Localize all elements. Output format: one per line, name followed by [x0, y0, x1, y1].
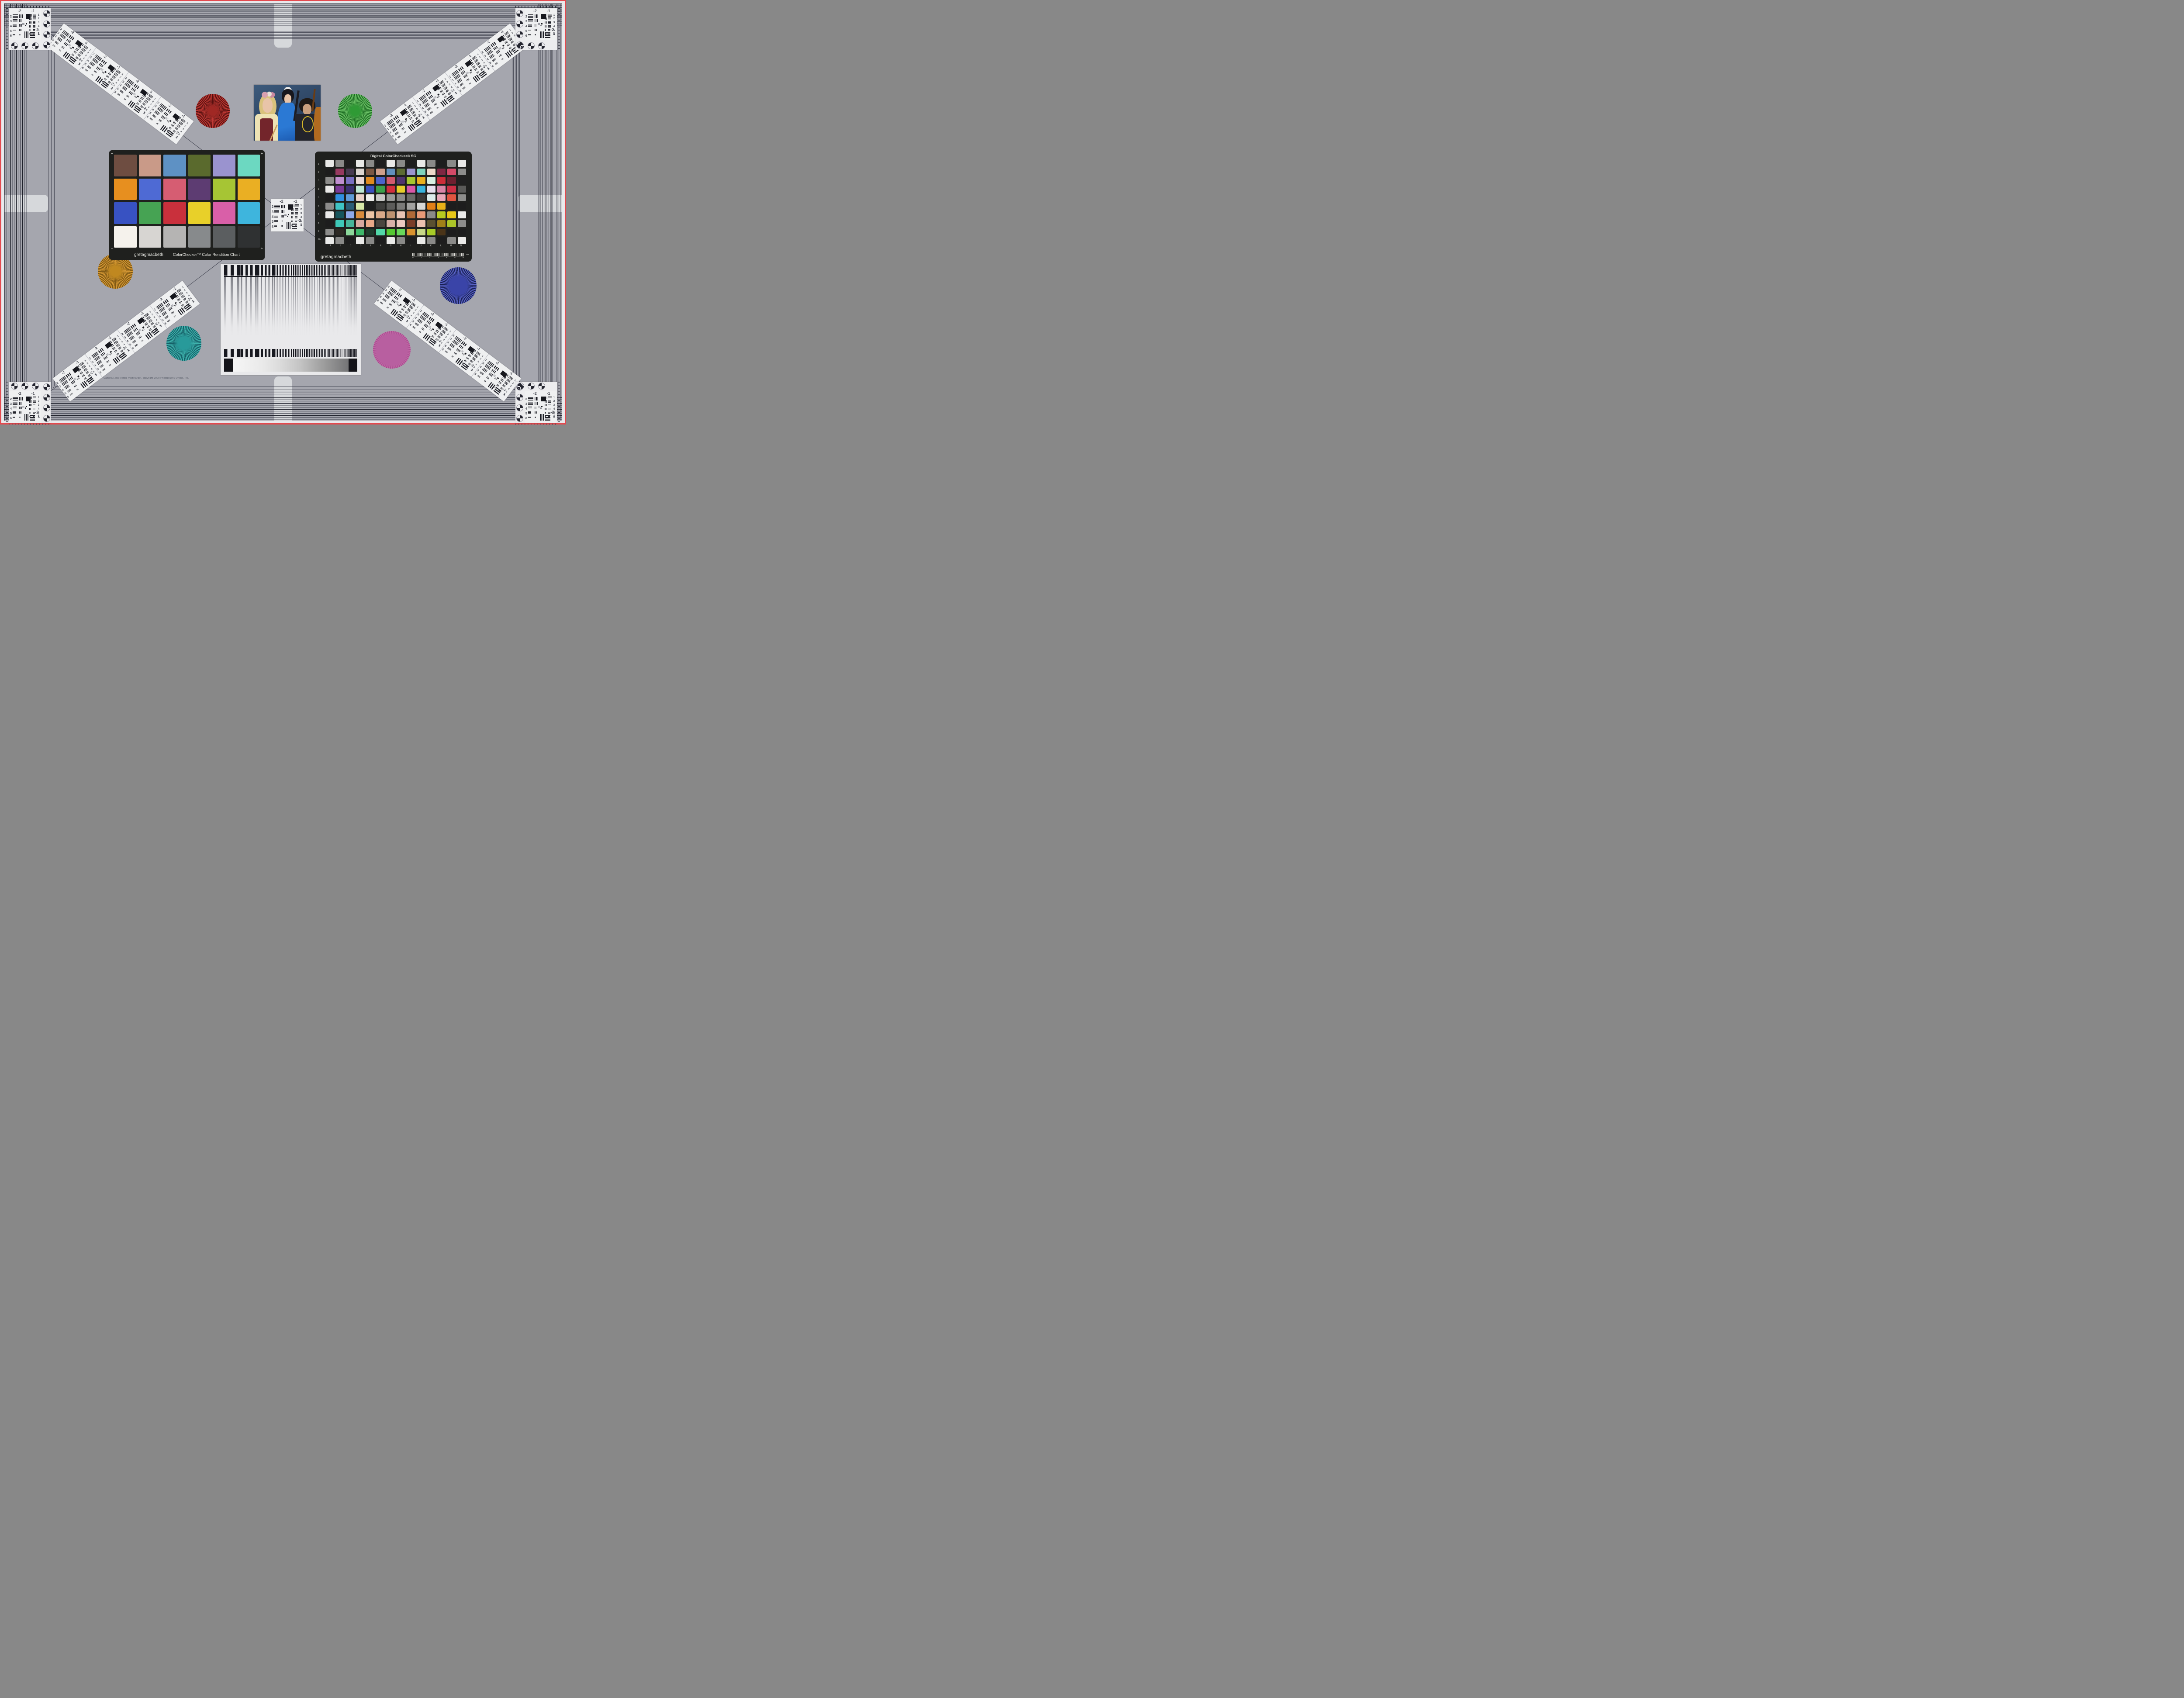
cc-patch-6	[238, 155, 260, 176]
usaf-hbars	[100, 364, 104, 368]
usaf-hbars	[548, 408, 550, 410]
usaf-fine-cluster	[77, 377, 79, 380]
usaf-vbars	[428, 95, 433, 100]
top-line-pattern	[4, 3, 562, 27]
usaf-hbars	[274, 205, 280, 208]
sg-patch-H8	[397, 220, 405, 227]
usaf-left-number: 6	[376, 300, 379, 303]
usaf-hbars	[86, 371, 89, 374]
sg-patch-K8	[427, 220, 435, 227]
usaf-left-number: 3	[272, 211, 273, 214]
usaf-left-number: 5	[129, 343, 132, 347]
usaf-right-number: 4	[180, 131, 182, 133]
fiducial-quadrant-icon	[516, 21, 523, 28]
usaf-hbars	[85, 69, 88, 72]
usaf-label-bottom-1: 1	[110, 86, 114, 90]
usaf-left-number: 2	[156, 101, 159, 105]
usaf-hbars	[122, 86, 128, 91]
usaf-vbars	[466, 78, 470, 81]
edge-tick-ruler	[515, 424, 557, 424]
sg-patch-K6	[427, 203, 435, 210]
usaf-left-number: 3	[56, 31, 59, 35]
usaf-hbars	[33, 408, 35, 410]
fiducial-quadrant-icon	[43, 31, 50, 38]
usaf-right-number: 2	[553, 400, 555, 403]
usaf-vbars	[96, 66, 100, 70]
chirp-bars-top	[224, 265, 357, 276]
usaf-vbars	[442, 93, 445, 96]
sg-patch-C1	[346, 160, 354, 167]
usaf-vbars	[159, 119, 162, 122]
usaf-hbars	[13, 402, 17, 405]
usaf-vbars	[424, 324, 428, 328]
usaf-bottom-hbars	[414, 119, 422, 127]
usaf-hbars	[445, 350, 448, 353]
ruler-number: 4	[446, 256, 447, 259]
usaf-fine-square	[26, 23, 27, 24]
sg-column-label: A	[325, 245, 335, 247]
sg-row-label: 10	[318, 238, 321, 241]
usaf-vbars	[147, 325, 150, 328]
sg-patch-F8	[376, 220, 384, 227]
usaf-hbars	[33, 400, 36, 403]
usaf-vbars	[109, 364, 111, 366]
usaf-fine-cluster	[22, 406, 24, 407]
usaf-left-number: 5	[51, 39, 54, 42]
edge-tick-ruler	[6, 382, 8, 423]
usaf-label-minus2: -2	[280, 200, 283, 204]
edge-tick-ruler	[9, 424, 50, 424]
sg-patch-F6	[376, 203, 384, 210]
usaf-left-number: 2	[416, 100, 419, 104]
sg-column-label: N	[456, 245, 466, 247]
chirp-bars-bottom	[224, 349, 357, 357]
cc-patch-5	[213, 155, 235, 176]
sg-patch-L7	[437, 211, 446, 218]
usaf-bottom-vbars	[24, 31, 28, 38]
usaf-right-number: 3	[38, 404, 40, 407]
ruler-number: 5	[454, 256, 456, 259]
fiducial-quadrant-icon	[43, 415, 50, 422]
sg-patch-F9	[376, 229, 384, 236]
usaf-left-number: 3	[91, 361, 94, 364]
sg-patch-J2	[417, 169, 425, 176]
sg-column-label: M	[446, 245, 456, 247]
usaf-left-number: 2	[92, 52, 95, 56]
usaf-hbars	[274, 220, 277, 222]
usaf-vbars	[545, 408, 546, 410]
usaf-right-number: 1	[121, 73, 124, 76]
photo-flower-crown	[260, 91, 275, 98]
sg-patch-L4	[437, 186, 446, 193]
usaf-right-number: 3	[509, 385, 512, 388]
usaf-label-minus1: -1	[31, 9, 35, 13]
usaf-left-number: 2	[481, 51, 484, 55]
usaf-left-number: 6	[81, 67, 84, 70]
sg-patch-M10	[447, 237, 456, 244]
fiducial-quadrant-icon	[516, 404, 523, 411]
corner-panel-bottom-right: -2-123456123456-21	[515, 382, 557, 423]
usaf-hbars	[295, 208, 298, 211]
usaf-left-number: 2	[10, 15, 12, 18]
ruler-ticks	[412, 253, 464, 256]
sg-title: Digital ColorChecker® SG	[315, 154, 472, 158]
usaf-vbars	[108, 72, 111, 76]
usaf-vbars	[545, 412, 546, 414]
usaf-vbars	[19, 411, 21, 414]
usaf-fine-square	[541, 23, 543, 24]
ruler-number: 3	[438, 256, 439, 259]
usaf-right-number: 2	[151, 100, 154, 103]
usaf-fine-cluster	[284, 214, 287, 216]
usaf-hbars	[164, 315, 169, 319]
edge-tick-ruler	[9, 6, 50, 8]
fiducial-quadrant-icon	[43, 10, 50, 17]
sg-patch-G8	[387, 220, 395, 227]
usaf-left-number: 3	[417, 313, 420, 317]
usaf-right-number: 1	[444, 78, 447, 80]
usaf-label-bottom-1: 1	[38, 32, 40, 36]
usaf-hbars	[430, 111, 433, 114]
usaf-vbars	[161, 115, 165, 119]
usaf-left-number: 3	[525, 402, 527, 406]
usaf-label-minus2: -2	[454, 64, 459, 69]
usaf-vbars	[281, 210, 284, 213]
corner-usaf-target: -2-123456123456-21	[525, 9, 556, 40]
photo-cello-body	[314, 107, 321, 141]
usaf-vbars	[444, 96, 446, 98]
sg-patch-B5	[335, 194, 344, 201]
usaf-hbars	[511, 41, 514, 44]
usaf-vbars	[419, 331, 422, 333]
usaf-vbars	[472, 65, 476, 69]
usaf-right-number: 3	[182, 128, 184, 131]
sg-patch-B4	[335, 186, 344, 193]
usaf-label-minus2: -2	[397, 287, 402, 292]
usaf-left-number: 2	[387, 285, 390, 289]
usaf-fine-cluster	[502, 47, 505, 49]
usaf-right-number: 4	[114, 82, 117, 85]
ruler-number: 0	[412, 256, 414, 259]
usaf-hbars	[33, 17, 36, 20]
corner-usaf-target: -2-123456123456-21	[10, 391, 41, 423]
photo-necklace	[302, 116, 314, 132]
cc-patch-10	[188, 179, 211, 200]
usaf-left-number: 4	[479, 366, 482, 369]
usaf-left-number: 2	[452, 334, 455, 338]
usaf-left-number: 6	[492, 66, 495, 69]
usaf-label-minus1: -1	[149, 89, 153, 94]
cc-patch-9	[163, 179, 186, 200]
usaf-left-number: 4	[422, 107, 425, 110]
usaf-left-number: 5	[162, 319, 165, 322]
sg-column-label: B	[335, 245, 346, 247]
sg-patch-I6	[407, 203, 415, 210]
sg-patch-E7	[366, 211, 374, 218]
usaf-vbars	[464, 360, 467, 362]
usaf-vbars	[177, 298, 180, 301]
sg-patch-L6	[437, 203, 446, 210]
usaf-left-number: 6	[132, 347, 135, 351]
sg-patch-D4	[356, 186, 364, 193]
usaf-left-number: 2	[121, 333, 124, 336]
sg-patch-B1	[335, 160, 344, 167]
usaf-fine-square	[169, 120, 171, 122]
usaf-left-number: 3	[419, 104, 422, 107]
usaf-left-number: 3	[121, 80, 124, 84]
usaf-hbars	[380, 301, 383, 304]
plus-mark-icon: +	[111, 247, 113, 250]
sg-patch-A3	[325, 177, 334, 184]
plus-mark-icon: +	[261, 247, 263, 250]
usaf-hbars	[181, 294, 185, 298]
usaf-vbars	[431, 99, 435, 103]
usaf-left-number: 6	[164, 323, 167, 326]
sg-patch-B9	[335, 229, 344, 236]
sg-brand: gretagmacbeth	[321, 254, 351, 259]
usaf-vbars	[456, 348, 460, 352]
usaf-left-number: 2	[154, 308, 157, 312]
usaf-left-number: 6	[473, 373, 477, 376]
usaf-right-number: 3	[301, 212, 302, 215]
usaf-hbars	[67, 389, 72, 393]
corner-usaf-target: -2-123456123456-21	[525, 391, 556, 423]
usaf-label-bottom-1: 1	[470, 368, 473, 372]
usaf-right-number: 4	[410, 315, 412, 318]
usaf-fine-cluster	[25, 25, 27, 27]
usaf-fine-cluster	[404, 120, 407, 122]
sg-patch-K5	[427, 194, 435, 201]
usaf-left-number: 4	[86, 60, 89, 63]
usaf-fine-square	[470, 69, 472, 71]
usaf-right-number: 2	[119, 76, 121, 79]
usaf-fine-square	[437, 94, 439, 96]
usaf-left-number: 4	[10, 407, 12, 411]
sg-row-label: 6	[318, 205, 321, 207]
usaf-vbars	[491, 369, 496, 374]
usaf-vbars	[477, 71, 479, 73]
usaf-right-number: 1	[153, 98, 156, 100]
frequency-sweep-chart	[221, 264, 361, 375]
ruler-number: 2	[429, 256, 430, 259]
usaf-hbars	[528, 397, 533, 400]
sg-patch-B7	[335, 211, 344, 218]
fiducial-quadrant-icon	[538, 383, 545, 390]
sg-patch-C8	[346, 220, 354, 227]
sg-patch-H9	[397, 229, 405, 236]
usaf-bottom-hbars	[30, 415, 35, 421]
usaf-hbars	[505, 381, 508, 385]
usaf-vbars	[106, 75, 109, 78]
usaf-vbars	[440, 90, 443, 93]
usaf-hbars	[79, 51, 83, 54]
usaf-label-bottom-1: 1	[502, 393, 506, 397]
usaf-hbars	[274, 215, 278, 217]
sg-patch-M2	[447, 169, 456, 176]
usaf-left-number: 4	[381, 293, 384, 296]
usaf-left-number: 5	[476, 369, 479, 373]
usaf-hbars	[528, 411, 531, 414]
usaf-left-number: 4	[272, 215, 273, 219]
colorchecker-brand: gretagmacbeth	[134, 252, 163, 257]
usaf-hbars	[13, 34, 15, 35]
usaf-hbars	[395, 131, 399, 135]
usaf-left-number: 4	[487, 58, 490, 62]
sg-patch-N3	[458, 177, 466, 184]
usaf-vbars	[421, 327, 425, 330]
usaf-vbars	[149, 328, 152, 331]
usaf-label-minus2: -2	[135, 79, 140, 84]
usaf-right-number: 4	[82, 58, 85, 60]
usaf-vbars	[535, 34, 536, 35]
usaf-vbars	[19, 24, 22, 27]
usaf-fine-square	[137, 96, 139, 97]
usaf-label-bottom-1: 1	[553, 414, 555, 418]
cc-patch-23	[213, 226, 235, 248]
usaf-right-number: 1	[38, 14, 40, 17]
fiducial-quadrant-icon	[517, 383, 524, 390]
usaf-hbars	[13, 397, 18, 400]
usaf-vbars	[141, 339, 144, 342]
usaf-vbars	[509, 47, 511, 49]
usaf-label-minus2: -2	[18, 9, 21, 13]
usaf-right-number: 2	[119, 338, 121, 341]
usaf-fine-square	[72, 47, 74, 48]
sg-row-label: 7	[318, 213, 321, 216]
usaf-fine-cluster	[498, 47, 502, 50]
usaf-hbars	[52, 44, 55, 47]
sg-patch-D10	[356, 237, 364, 244]
cc-patch-19	[114, 226, 137, 248]
usaf-vbars	[76, 48, 79, 52]
colorchecker-grid	[114, 155, 260, 248]
usaf-hbars	[528, 417, 530, 418]
sg-patch-A4	[325, 186, 334, 193]
usaf-left-number: 2	[124, 77, 127, 80]
sg-patch-J3	[417, 177, 425, 184]
chirp-segment	[308, 349, 324, 357]
usaf-hbars	[548, 400, 551, 403]
sg-patch-I5	[407, 194, 415, 201]
usaf-vbars	[411, 120, 414, 122]
sg-patch-E6	[366, 203, 374, 210]
edge-tick-ruler	[6, 8, 8, 50]
sg-patch-F7	[376, 211, 384, 218]
usaf-vbars	[145, 322, 148, 326]
usaf-vbars	[436, 107, 439, 109]
sg-patch-N4	[458, 186, 466, 193]
usaf-vbars	[29, 25, 31, 27]
usaf-label-bottom-1: 1	[191, 300, 195, 304]
usaf-left-number: 3	[481, 362, 484, 366]
usaf-fine-square	[400, 304, 402, 306]
usaf-vbars	[409, 117, 412, 120]
usaf-vbars	[91, 73, 94, 76]
magenta-star	[373, 331, 411, 369]
sg-patch-A5	[325, 194, 334, 201]
chirp-segment	[257, 265, 274, 276]
usaf-fine-square	[541, 406, 543, 407]
usaf-right-number: 2	[414, 309, 417, 311]
usaf-right-number: 1	[553, 397, 555, 399]
usaf-label-bottom-1: 1	[300, 223, 302, 228]
sg-patch-I2	[407, 169, 415, 176]
cc-patch-15	[163, 202, 186, 224]
usaf-vbars	[163, 112, 168, 117]
usaf-vbars	[486, 376, 490, 379]
usaf-right-number: 1	[182, 286, 184, 289]
usaf-right-number: 2	[301, 208, 302, 211]
usaf-left-number: 3	[10, 402, 12, 406]
sg-patch-L3	[437, 177, 446, 184]
usaf-hbars	[13, 29, 16, 31]
sg-patch-G1	[387, 160, 395, 167]
usaf-vbars	[505, 41, 508, 44]
sg-patch-L10	[437, 237, 446, 244]
usaf-right-number: 3	[149, 104, 152, 106]
usaf-left-number: 3	[10, 20, 12, 23]
sg-column-label: D	[356, 245, 366, 247]
usaf-bottom-hbars	[151, 328, 159, 335]
usaf-hbars	[167, 319, 170, 322]
usaf-right-number: 2	[511, 32, 514, 35]
usaf-hbars	[13, 19, 17, 22]
sg-patch-M7	[447, 211, 456, 218]
usaf-vbars	[498, 54, 502, 57]
sg-patch-C4	[346, 186, 354, 193]
usaf-hbars	[149, 319, 152, 322]
usaf-hbars	[528, 407, 532, 409]
usaf-vbars	[468, 354, 471, 357]
usaf-vbars	[82, 374, 85, 377]
usaf-fine-cluster	[165, 117, 169, 120]
usaf-hbars	[116, 343, 120, 347]
usaf-label-minus2: -2	[167, 104, 172, 108]
sg-patch-C10	[346, 237, 354, 244]
usaf-hbars	[155, 110, 160, 115]
usaf-left-number: 6	[146, 116, 149, 119]
usaf-vbars	[454, 352, 457, 355]
cc-patch-12	[238, 179, 260, 200]
cc-patch-2	[139, 155, 162, 176]
usaf-fine-cluster	[428, 325, 431, 328]
colorchecker-classic: + + + + gretagmacbeth ColorChecker™ Colo…	[109, 150, 265, 260]
fiducial-quadrant-icon	[43, 41, 50, 48]
sg-patch-D1	[356, 160, 364, 167]
usaf-hbars	[548, 29, 550, 31]
usaf-right-number: 4	[147, 107, 149, 109]
usaf-hbars	[476, 62, 480, 65]
usaf-vbars	[403, 305, 407, 309]
usaf-fine-cluster	[171, 304, 174, 307]
usaf-label-minus1: -1	[547, 9, 550, 13]
usaf-vbars	[545, 17, 547, 20]
usaf-vbars	[29, 29, 31, 31]
usaf-hbars	[417, 319, 422, 324]
sg-patch-H3	[397, 177, 405, 184]
usaf-vbars	[29, 408, 31, 410]
usaf-label-bottom-1: 1	[405, 319, 409, 323]
sg-patch-B2	[335, 169, 344, 176]
photo-right-face	[303, 104, 311, 115]
usaf-left-number: 2	[89, 357, 92, 361]
ruler-unit: mm	[466, 253, 469, 255]
usaf-vbars	[29, 397, 32, 399]
colorchecker-sg: Digital ColorChecker® SG 12345678910 ABC…	[315, 152, 472, 262]
fiducial-quadrant-icon	[516, 41, 523, 48]
usaf-hbars	[470, 360, 473, 363]
sg-patch-B10	[335, 237, 344, 244]
